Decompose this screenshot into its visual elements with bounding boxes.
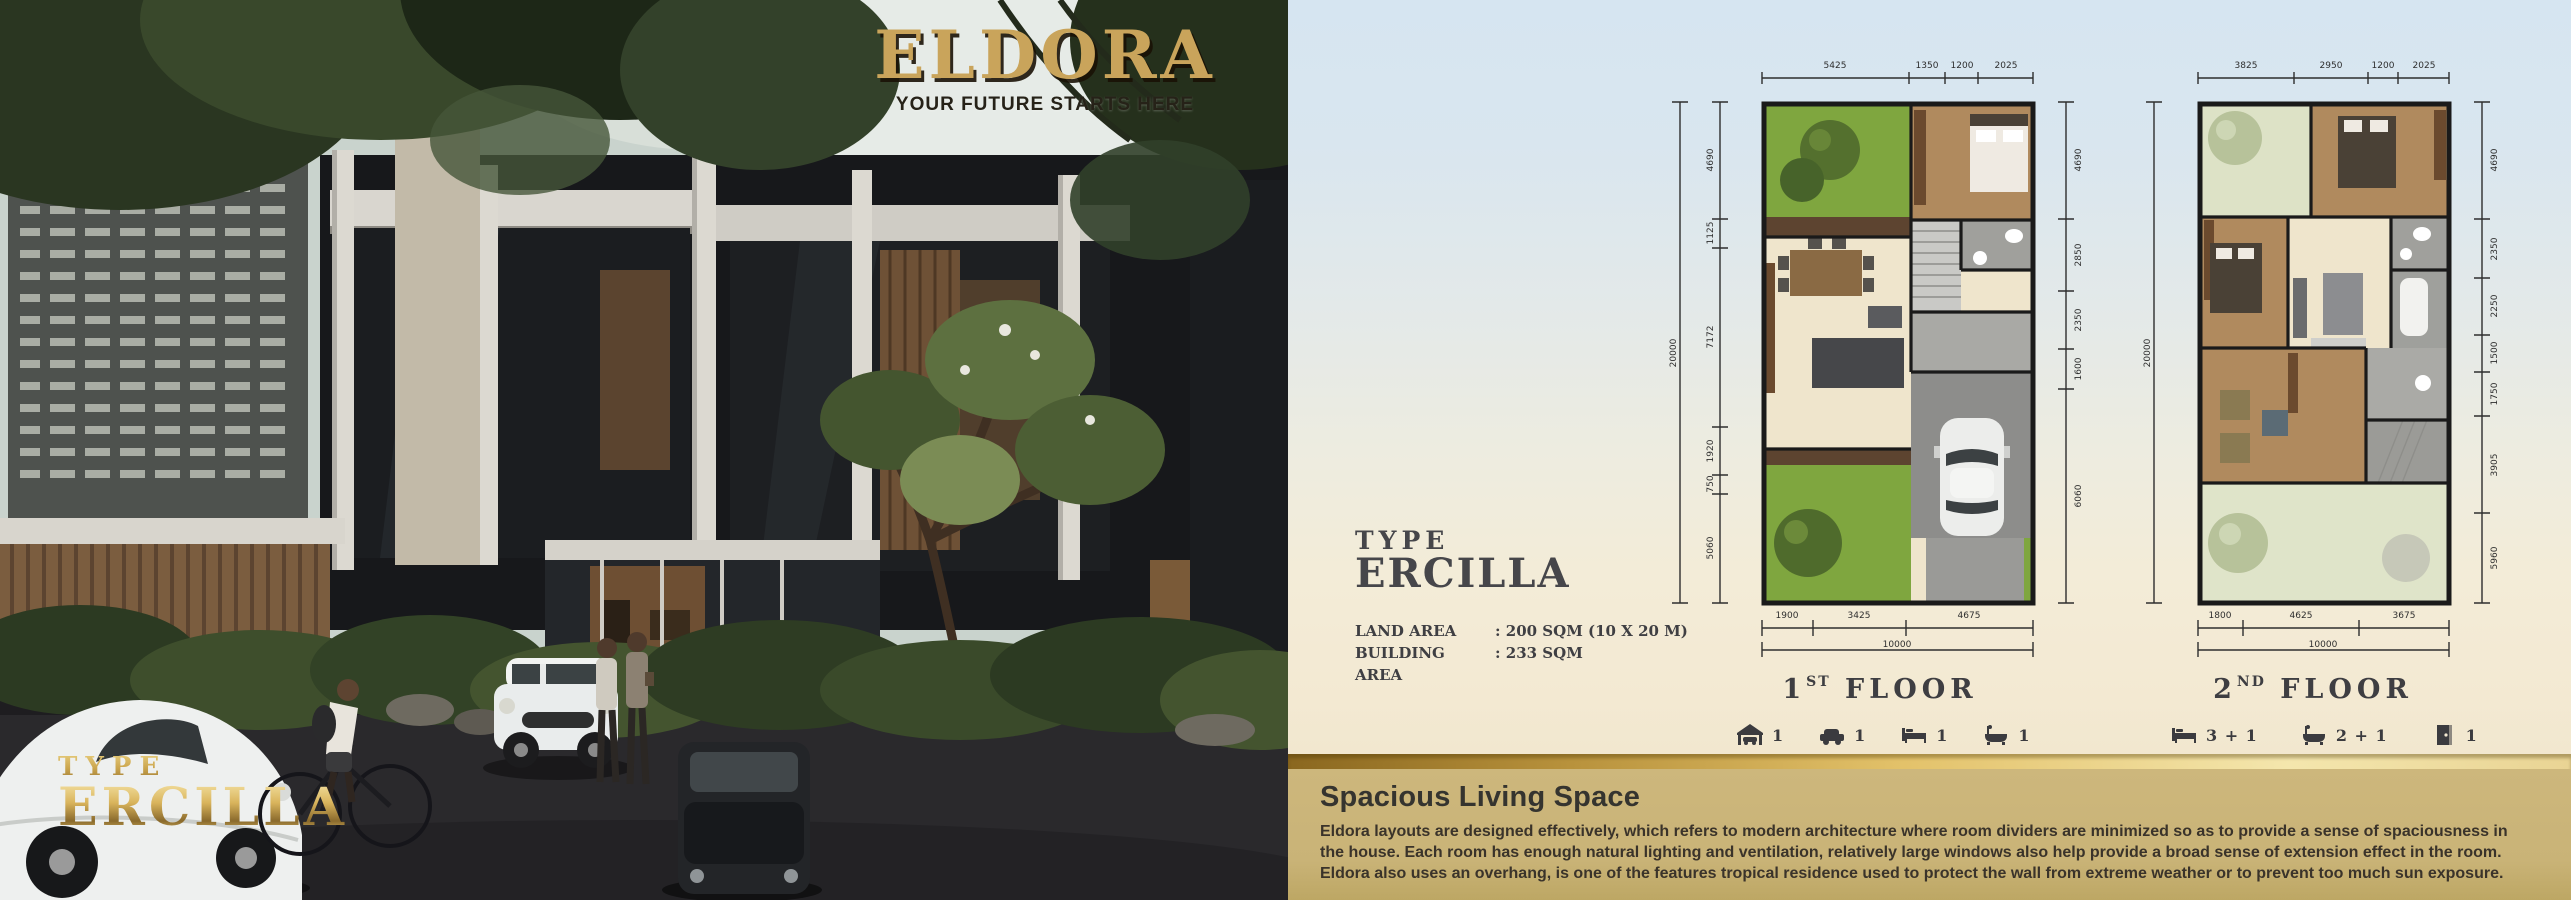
plan1-car (1934, 418, 2010, 536)
land-area-row: LAND AREA : 200 SQM (10 X 20 M) (1355, 621, 1688, 643)
floor1-car-feature: 1 (1818, 724, 1866, 746)
floor1-suffix: ST (1806, 675, 1831, 689)
svg-text:4690: 4690 (2490, 148, 2500, 171)
svg-text:2850: 2850 (2074, 243, 2084, 266)
svg-text:1125: 1125 (1706, 222, 1716, 245)
floor2-features: 3 + 1 2 + 1 1 (2170, 724, 2478, 746)
svg-text:3905: 3905 (2490, 454, 2500, 477)
bed-count: 1 (1936, 726, 1948, 745)
brand-logo-block: ELDORA YOUR FUTURE STARTS HERE (865, 22, 1225, 116)
svg-text:1200: 1200 (1951, 61, 1974, 71)
svg-text:20000: 20000 (1669, 338, 1679, 367)
svg-text:10000: 10000 (2309, 640, 2338, 650)
floor1-features: 1 1 1 1 (1736, 724, 2031, 746)
description-body: Eldora layouts are designed effectively,… (1320, 821, 2530, 884)
floor2-suffix: ND (2237, 675, 2266, 689)
building-area-value: : 233 SQM (1495, 643, 1583, 687)
floor1-ordinal: 1 (1782, 676, 1806, 703)
photo-type-overlay: TYPE ERCILLA (58, 752, 348, 834)
dark-car (662, 742, 822, 900)
svg-text:20000: 20000 (2143, 338, 2153, 367)
first-floor-label: 1ST FLOOR (1662, 676, 2098, 703)
door-icon (2430, 724, 2458, 746)
floor2-ordinal: 2 (2213, 676, 2237, 703)
bath-count: 1 (2018, 726, 2030, 745)
floor1-bed-feature: 1 (1900, 724, 1948, 746)
svg-text:4625: 4625 (2290, 611, 2313, 621)
svg-text:750: 750 (1706, 475, 1716, 492)
floor2-bed-feature: 3 + 1 (2170, 724, 2258, 746)
bed-count: 3 + 1 (2206, 726, 2258, 745)
svg-text:2950: 2950 (2320, 61, 2343, 71)
svg-text:4690: 4690 (2074, 148, 2084, 171)
svg-text:1800: 1800 (2209, 611, 2232, 621)
plan2-rooms (2200, 104, 2449, 603)
bed-icon (1900, 724, 1928, 746)
property-photo: ELDORA YOUR FUTURE STARTS HERE TYPE ERCI… (0, 0, 1288, 900)
svg-text:2025: 2025 (1995, 61, 2018, 71)
car-count: 1 (1854, 726, 1866, 745)
floor1-bath-feature: 1 (1982, 724, 2030, 746)
svg-text:5425: 5425 (1824, 61, 1847, 71)
type-spec-block: TYPE ERCILLA LAND AREA : 200 SQM (10 X 2… (1355, 528, 1688, 686)
svg-text:5060: 5060 (1706, 536, 1716, 559)
svg-text:2025: 2025 (2413, 61, 2436, 71)
svg-text:1900: 1900 (1776, 611, 1799, 621)
svg-text:1500: 1500 (2490, 341, 2500, 364)
gold-divider (1288, 754, 2571, 769)
second-floor-label: 2ND FLOOR (2138, 676, 2488, 703)
svg-text:1200: 1200 (2372, 61, 2395, 71)
floor1-carport-feature: 1 (1736, 724, 1784, 746)
floor2-bath-feature: 2 + 1 (2300, 724, 2388, 746)
land-area-value: : 200 SQM (10 X 20 M) (1495, 621, 1688, 643)
floor-plan-2: 3825 2950 1200 2025 20000 4690 2350 2250… (2138, 38, 2504, 658)
svg-text:3675: 3675 (2393, 611, 2416, 621)
svg-text:1600: 1600 (2074, 357, 2084, 380)
description-section: Spacious Living Space Eldora layouts are… (1288, 754, 2571, 900)
door-count: 1 (2466, 726, 2478, 745)
brochure-page: ELDORA YOUR FUTURE STARTS HERE TYPE ERCI… (0, 0, 2571, 900)
area-spec-rows: LAND AREA : 200 SQM (10 X 20 M) BUILDING… (1355, 621, 1688, 686)
description-box: Spacious Living Space Eldora layouts are… (1288, 769, 2571, 900)
svg-text:3825: 3825 (2235, 61, 2258, 71)
eldora-logo: ELDORA (865, 22, 1225, 88)
svg-text:2250: 2250 (2490, 294, 2500, 317)
building-area-label: BUILDING AREA (1355, 643, 1495, 687)
brand-tagline: YOUR FUTURE STARTS HERE (865, 94, 1225, 116)
spec-type-name: ERCILLA (1355, 553, 1688, 595)
floor2-door-feature: 1 (2430, 724, 2478, 746)
floor-plan-1: 5425 1350 1200 2025 20000 4690 1125 7172… (1662, 38, 2098, 658)
car-icon (1818, 724, 1846, 746)
building-area-row: BUILDING AREA : 233 SQM (1355, 643, 1688, 687)
svg-text:7172: 7172 (1706, 326, 1716, 349)
svg-text:6060: 6060 (2074, 484, 2084, 507)
bed-icon (2170, 724, 2198, 746)
plan1-rooms (1764, 104, 2033, 603)
carport-count: 1 (1772, 726, 1784, 745)
svg-text:4675: 4675 (1958, 611, 1981, 621)
svg-text:2350: 2350 (2074, 308, 2084, 331)
description-heading: Spacious Living Space (1320, 781, 2545, 814)
land-area-label: LAND AREA (1355, 621, 1495, 643)
floor2-word: FLOOR (2280, 676, 2413, 703)
carport-icon (1736, 724, 1764, 746)
svg-text:1750: 1750 (2490, 382, 2500, 405)
photo-type-name: ERCILLA (58, 782, 348, 834)
svg-text:2350: 2350 (2490, 237, 2500, 260)
bath-icon (2300, 724, 2328, 746)
svg-text:10000: 10000 (1883, 640, 1912, 650)
svg-text:4690: 4690 (1706, 148, 1716, 171)
svg-text:1350: 1350 (1916, 61, 1939, 71)
bath-count: 2 + 1 (2336, 726, 2388, 745)
bath-icon (1982, 724, 2010, 746)
svg-text:3425: 3425 (1848, 611, 1871, 621)
floor1-word: FLOOR (1845, 676, 1978, 703)
svg-text:1920: 1920 (1706, 439, 1716, 462)
svg-text:5960: 5960 (2490, 546, 2500, 569)
